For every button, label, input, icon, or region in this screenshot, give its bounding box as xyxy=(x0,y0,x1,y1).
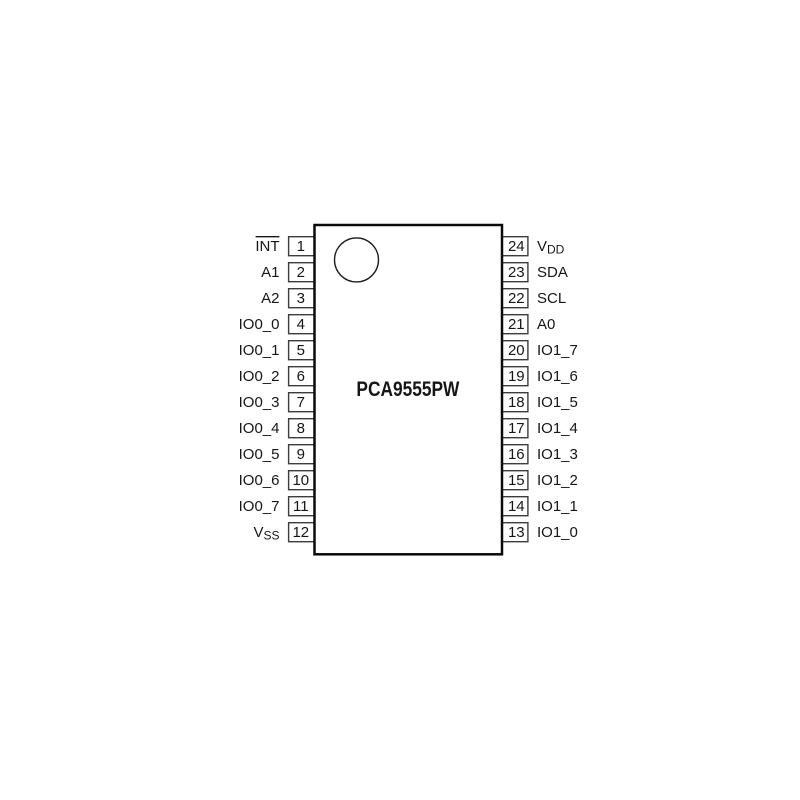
svg-text:IO0_2: IO0_2 xyxy=(239,368,280,385)
svg-text:SCL: SCL xyxy=(537,290,566,307)
svg-text:IO1_6: IO1_6 xyxy=(537,368,578,385)
svg-text:1: 1 xyxy=(297,238,305,255)
svg-text:6: 6 xyxy=(297,368,305,385)
svg-text:IO1_1: IO1_1 xyxy=(537,498,578,515)
svg-text:A2: A2 xyxy=(261,290,279,307)
svg-text:IO1_2: IO1_2 xyxy=(537,472,578,489)
svg-text:9: 9 xyxy=(297,446,305,463)
svg-text:5: 5 xyxy=(297,342,305,359)
svg-text:INT: INT xyxy=(255,238,279,255)
svg-text:19: 19 xyxy=(508,368,525,385)
svg-text:IO0_5: IO0_5 xyxy=(239,446,280,463)
svg-text:A0: A0 xyxy=(537,316,555,333)
svg-text:14: 14 xyxy=(508,498,525,515)
svg-text:IO1_4: IO1_4 xyxy=(537,420,578,437)
svg-text:IO1_5: IO1_5 xyxy=(537,394,578,411)
svg-text:IO1_0: IO1_0 xyxy=(537,524,578,541)
svg-text:16: 16 xyxy=(508,446,525,463)
svg-text:15: 15 xyxy=(508,472,525,489)
svg-text:3: 3 xyxy=(297,290,305,307)
svg-text:IO1_3: IO1_3 xyxy=(537,446,578,463)
svg-text:10: 10 xyxy=(292,472,309,489)
svg-text:7: 7 xyxy=(297,394,305,411)
svg-text:20: 20 xyxy=(508,342,525,359)
svg-text:IO0_4: IO0_4 xyxy=(239,420,280,437)
svg-text:21: 21 xyxy=(508,316,525,333)
svg-text:PCA9555PW: PCA9555PW xyxy=(356,377,460,401)
svg-text:SDA: SDA xyxy=(537,264,568,281)
svg-text:8: 8 xyxy=(297,420,305,437)
svg-text:IO0_7: IO0_7 xyxy=(239,498,280,515)
svg-text:IO0_1: IO0_1 xyxy=(239,342,280,359)
svg-text:A1: A1 xyxy=(261,264,279,281)
svg-text:11: 11 xyxy=(293,498,309,515)
svg-text:IO1_7: IO1_7 xyxy=(537,342,578,359)
svg-text:2: 2 xyxy=(297,264,305,281)
svg-text:13: 13 xyxy=(508,524,525,541)
svg-text:12: 12 xyxy=(292,524,309,541)
svg-text:24: 24 xyxy=(508,238,525,255)
svg-text:IO0_0: IO0_0 xyxy=(239,316,280,333)
svg-text:17: 17 xyxy=(508,420,525,437)
svg-text:4: 4 xyxy=(297,316,305,333)
svg-text:23: 23 xyxy=(508,264,525,281)
svg-text:IO0_6: IO0_6 xyxy=(239,472,280,489)
svg-text:18: 18 xyxy=(508,394,525,411)
svg-text:22: 22 xyxy=(508,290,525,307)
svg-text:IO0_3: IO0_3 xyxy=(239,394,280,411)
